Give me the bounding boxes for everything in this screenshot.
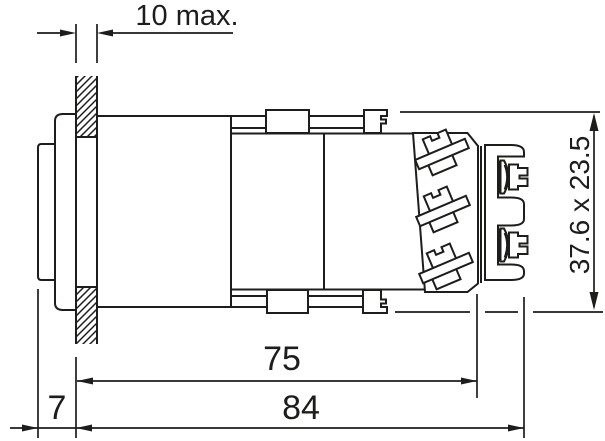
dim-label-75: 75 bbox=[263, 340, 301, 378]
mounting-clip-top bbox=[266, 110, 309, 133]
terminal-end-cap bbox=[481, 145, 528, 283]
dim-label-panel-thickness: 10 max. bbox=[135, 0, 238, 32]
front-bezel bbox=[55, 114, 76, 310]
dimension-drawing: 10 max. 37.6 x 23.5 75 7 84 bbox=[0, 0, 605, 441]
dim-label-7: 7 bbox=[48, 389, 67, 427]
latch-clip-bottom bbox=[363, 290, 387, 313]
rear-housing bbox=[231, 116, 426, 307]
main-body bbox=[97, 116, 231, 307]
dim-label-bezel-face: 37.6 x 23.5 bbox=[564, 136, 595, 275]
button-cap bbox=[38, 144, 56, 280]
dim-label-84: 84 bbox=[282, 389, 320, 427]
clamp-terminal-upper bbox=[500, 161, 528, 194]
dim-panel-thickness: 10 max. bbox=[37, 0, 239, 63]
clamp-terminal-lower bbox=[500, 229, 528, 262]
mounting-clip-bottom bbox=[267, 290, 308, 313]
through-panel-tube bbox=[76, 137, 97, 287]
terminal-block bbox=[409, 124, 478, 293]
latch-clip-top bbox=[364, 110, 387, 133]
